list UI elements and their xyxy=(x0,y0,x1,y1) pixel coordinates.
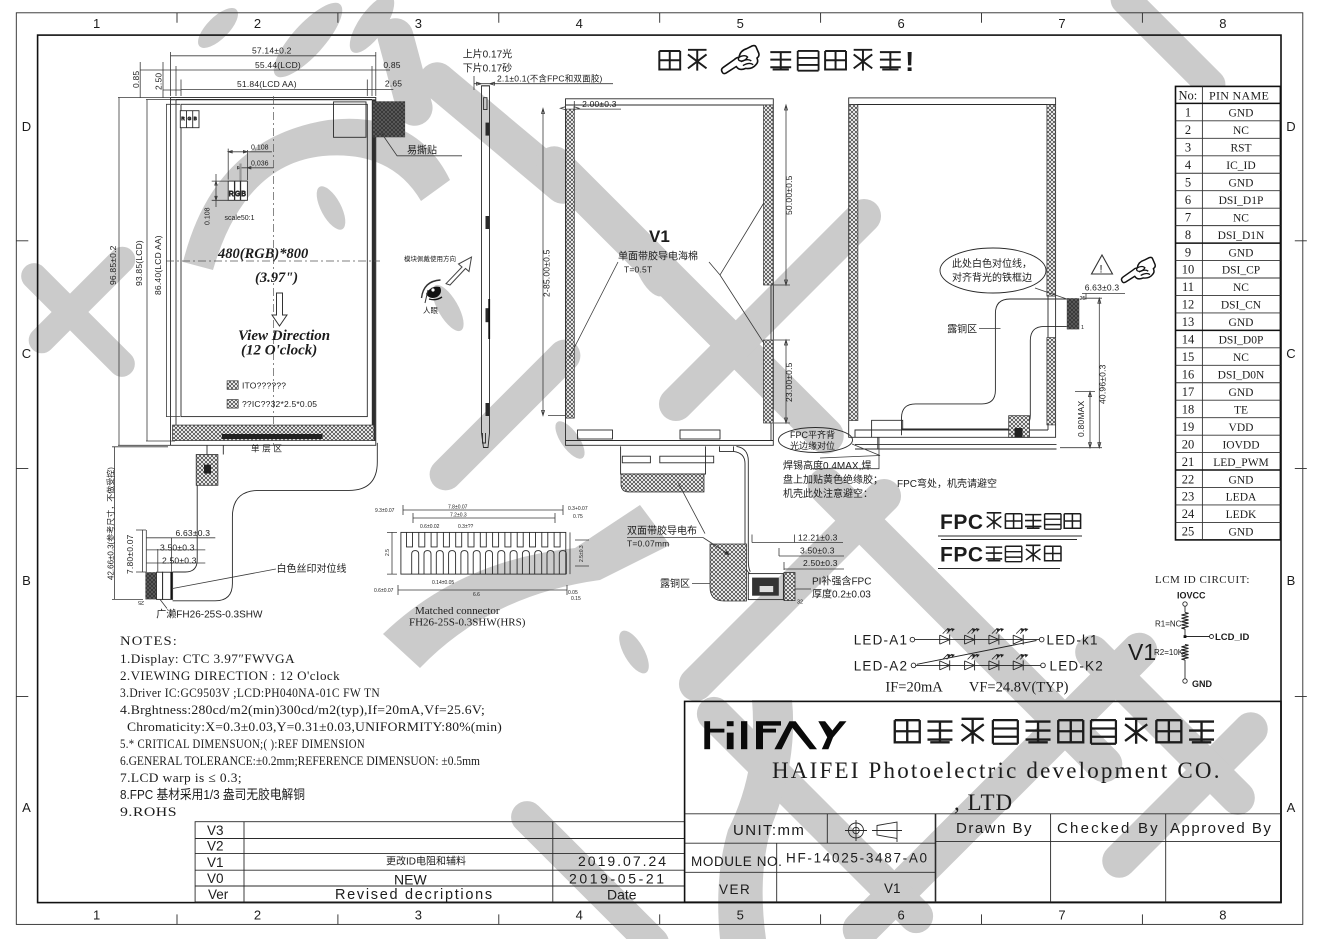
svg-text:4: 4 xyxy=(1185,158,1192,172)
svg-text:FPC平齐背: FPC平齐背 xyxy=(790,429,835,440)
svg-text:9: 9 xyxy=(1185,245,1191,259)
svg-text:NEW: NEW xyxy=(394,872,427,888)
svg-text:??IC??32*2.5*0.05: ??IC??32*2.5*0.05 xyxy=(242,399,317,409)
svg-text:T=0.5T: T=0.5T xyxy=(624,265,652,275)
svg-text:8: 8 xyxy=(1219,16,1226,31)
svg-text:上片0.17光: 上片0.17光 xyxy=(463,48,512,61)
svg-text:4: 4 xyxy=(576,16,583,31)
svg-text:(3.97"): (3.97") xyxy=(255,270,298,286)
svg-text:86.40(LCD AA): 86.40(LCD AA) xyxy=(153,235,163,295)
svg-text:V2: V2 xyxy=(207,839,224,854)
svg-text:1: 1 xyxy=(1081,325,1084,331)
svg-text:D: D xyxy=(22,119,31,134)
svg-text:易撕贴: 易撕贴 xyxy=(407,144,437,157)
svg-text:PI补强含FPC: PI补强含FPC xyxy=(812,575,871,588)
svg-text:G: G xyxy=(188,116,192,121)
svg-text:机壳此处注意避空：: 机壳此处注意避空： xyxy=(783,487,873,500)
svg-text:IOVDD: IOVDD xyxy=(1222,439,1259,451)
svg-text:0.3+0.07: 0.3+0.07 xyxy=(568,506,588,512)
svg-text:1.Display: CTC 3.97″FWVGA: 1.Display: CTC 3.97″FWVGA xyxy=(120,651,295,666)
svg-text:R: R xyxy=(229,191,234,198)
svg-text:0.85: 0.85 xyxy=(131,71,141,88)
svg-text:广濑FH26-25S-0.3SHW: 广濑FH26-25S-0.3SHW xyxy=(156,609,263,621)
svg-text:2: 2 xyxy=(1185,123,1191,137)
svg-text:GND: GND xyxy=(1229,527,1254,539)
svg-text:9.ROHS: 9.ROHS xyxy=(120,804,177,819)
svg-text:6: 6 xyxy=(1185,193,1191,207)
svg-text:7: 7 xyxy=(1058,16,1065,31)
svg-text:GND: GND xyxy=(1229,317,1254,329)
svg-text:NOTES:: NOTES: xyxy=(120,633,178,648)
svg-text:B: B xyxy=(241,191,246,198)
svg-text:96.85±0.2: 96.85±0.2 xyxy=(108,245,118,285)
svg-text:6.6: 6.6 xyxy=(473,592,480,598)
svg-text:(12 O'clock): (12 O'clock) xyxy=(241,343,317,359)
svg-text:ITO??????: ITO?????? xyxy=(242,381,286,391)
svg-text:0.80MAX: 0.80MAX xyxy=(1076,401,1086,437)
svg-text:7.LCD warp is ≤ 0.3;: 7.LCD warp is ≤ 0.3; xyxy=(120,770,242,785)
svg-text:GND: GND xyxy=(1229,474,1254,486)
svg-text:5: 5 xyxy=(737,16,744,31)
svg-text:GND: GND xyxy=(1229,387,1254,399)
svg-text:42.66±0.3(参考尺寸，不做受控): 42.66±0.3(参考尺寸，不做受控) xyxy=(106,467,116,580)
svg-text:1: 1 xyxy=(93,16,100,31)
svg-text:3.50±0.3: 3.50±0.3 xyxy=(160,543,195,553)
svg-text:19: 19 xyxy=(1182,420,1195,434)
svg-text:HAIFEI Photoelectric developme: HAIFEI Photoelectric development CO. xyxy=(772,758,1222,783)
svg-text:V0: V0 xyxy=(207,871,224,886)
svg-text:6.63±0.3: 6.63±0.3 xyxy=(1085,283,1120,293)
svg-text:VER: VER xyxy=(719,882,751,897)
svg-text:RST: RST xyxy=(1230,143,1251,155)
svg-text:40.96±0.3: 40.96±0.3 xyxy=(1098,364,1108,404)
svg-text:VF=24.8V(TYP): VF=24.8V(TYP) xyxy=(969,680,1069,696)
svg-text:GND: GND xyxy=(1229,108,1254,120)
svg-text:焊锡高度0.4MAX,焊: 焊锡高度0.4MAX,焊 xyxy=(783,459,871,472)
svg-text:0.14±0.05: 0.14±0.05 xyxy=(432,580,454,586)
svg-text:2.5±0.3: 2.5±0.3 xyxy=(579,545,585,562)
svg-text:GND: GND xyxy=(1229,247,1254,259)
svg-text:GND: GND xyxy=(1192,679,1213,689)
svg-text:2.50: 2.50 xyxy=(154,73,164,90)
svg-text:25: 25 xyxy=(1182,525,1195,539)
svg-text:2.VIEWING DIRECTION : 12 O'clo: 2.VIEWING DIRECTION : 12 O'clock xyxy=(120,668,340,683)
svg-text:!: ! xyxy=(1100,264,1103,276)
svg-text:LED-A1: LED-A1 xyxy=(854,633,908,648)
svg-text:B: B xyxy=(22,573,31,588)
svg-text:Checked By: Checked By xyxy=(1057,820,1160,837)
svg-text:2.00±0.3: 2.00±0.3 xyxy=(582,99,617,109)
svg-text:LCM ID CIRCUIT:: LCM ID CIRCUIT: xyxy=(1155,574,1250,586)
svg-text:480(RGB)*800: 480(RGB)*800 xyxy=(217,246,308,262)
svg-text:8: 8 xyxy=(1185,228,1191,242)
svg-text:NC: NC xyxy=(1233,125,1249,137)
svg-text:2019.07.24: 2019.07.24 xyxy=(578,853,668,869)
svg-text:LCD_ID: LCD_ID xyxy=(1215,632,1249,643)
svg-text:Revised decriptions: Revised decriptions xyxy=(335,887,494,903)
svg-text:DSI_D0P: DSI_D0P xyxy=(1219,335,1264,347)
svg-text:C: C xyxy=(1286,346,1295,361)
svg-text:12: 12 xyxy=(1182,298,1195,312)
svg-text:V1: V1 xyxy=(207,855,224,870)
svg-text:5: 5 xyxy=(1185,175,1191,189)
svg-text:93.85(LCD): 93.85(LCD) xyxy=(134,240,144,286)
svg-text:C: C xyxy=(22,346,31,361)
svg-text:50.00±0.5: 50.00±0.5 xyxy=(784,175,794,215)
svg-text:7.80±0.07: 7.80±0.07 xyxy=(125,534,135,574)
svg-text:光边缘对位: 光边缘对位 xyxy=(790,440,835,451)
svg-text:DSI_CP: DSI_CP xyxy=(1222,265,1260,277)
svg-text:24: 24 xyxy=(1182,507,1195,521)
svg-text:4.Brghtness:280cd/m2(min)300cd: 4.Brghtness:280cd/m2(min)300cd/m2(typ),I… xyxy=(120,702,485,717)
svg-text:NC: NC xyxy=(1233,352,1249,364)
svg-text:16: 16 xyxy=(1182,368,1195,382)
svg-text:13: 13 xyxy=(1182,315,1195,329)
svg-text:2-85.00±0.5: 2-85.00±0.5 xyxy=(542,249,552,297)
svg-text:Date: Date xyxy=(607,887,637,903)
svg-text:21: 21 xyxy=(1182,455,1195,469)
svg-text:此处白色对位线，: 此处白色对位线， xyxy=(952,257,1032,270)
svg-text:32: 32 xyxy=(797,600,803,606)
svg-text:12.21±0.3: 12.21±0.3 xyxy=(798,533,838,543)
svg-text:8.FPC 基材采用1/3 盎司无胶电解铜: 8.FPC 基材采用1/3 盎司无胶电解铜 xyxy=(120,787,305,802)
svg-text:Chromaticity:X=0.3±0.03,Y=0.31: Chromaticity:X=0.3±0.03,Y=0.31±0.03,UNIF… xyxy=(127,719,502,734)
svg-text:IC_ID: IC_ID xyxy=(1226,160,1255,172)
svg-text:V3: V3 xyxy=(207,823,224,838)
svg-text:V1: V1 xyxy=(1128,639,1156,665)
svg-text:IF=20mA: IF=20mA xyxy=(885,680,943,696)
svg-text:55.44(LCD): 55.44(LCD) xyxy=(255,60,301,70)
svg-text:2.50±0.3: 2.50±0.3 xyxy=(803,558,838,568)
svg-text:2019-05-21: 2019-05-21 xyxy=(569,871,667,887)
svg-text:0,108: 0,108 xyxy=(251,145,269,152)
svg-text:FPC: FPC xyxy=(940,511,984,534)
svg-text:0.85: 0.85 xyxy=(383,60,400,70)
svg-text:57.14±0.2: 57.14±0.2 xyxy=(252,45,292,55)
svg-text:2.65: 2.65 xyxy=(385,79,402,89)
svg-text:NC: NC xyxy=(1233,282,1249,294)
svg-text:6.63±0.3: 6.63±0.3 xyxy=(176,528,211,538)
svg-text:Matched connector: Matched connector xyxy=(415,605,500,617)
svg-text:7.8±0.07: 7.8±0.07 xyxy=(448,505,468,511)
svg-text:T=0.07mm: T=0.07mm xyxy=(627,539,669,549)
svg-text:LED_PWM: LED_PWM xyxy=(1213,457,1269,469)
svg-text:TE: TE xyxy=(1234,404,1248,416)
svg-text:Approved By: Approved By xyxy=(1170,820,1272,837)
svg-text:8: 8 xyxy=(1219,908,1226,923)
svg-text:DSI_D1N: DSI_D1N xyxy=(1218,230,1265,242)
svg-text:0.6±0.02: 0.6±0.02 xyxy=(420,524,440,530)
svg-text:0,036: 0,036 xyxy=(251,160,269,167)
svg-text:更改ID电阻和辅料: 更改ID电阻和辅料 xyxy=(386,855,466,868)
svg-text:5: 5 xyxy=(737,908,744,923)
svg-text:2.1±0.1(不含FPC和双面胶): 2.1±0.1(不含FPC和双面胶) xyxy=(497,74,603,84)
svg-text:3: 3 xyxy=(415,908,422,923)
svg-text:51.84(LCD AA): 51.84(LCD AA) xyxy=(237,79,297,89)
svg-text:FPC弯处，机壳请避空: FPC弯处，机壳请避空 xyxy=(897,477,997,490)
svg-text:厚度0.2±0.03: 厚度0.2±0.03 xyxy=(812,588,871,601)
svg-text:单 层 区: 单 层 区 xyxy=(251,444,283,454)
svg-text:6: 6 xyxy=(897,16,904,31)
svg-text:单面带胶导电海棉: 单面带胶导电海棉 xyxy=(618,250,698,263)
svg-text:盘上加贴黄色绝缘胶；: 盘上加贴黄色绝缘胶； xyxy=(783,473,883,486)
svg-text:GND: GND xyxy=(1229,177,1254,189)
svg-text:对齐背光的铁框边: 对齐背光的铁框边 xyxy=(952,271,1032,284)
svg-text:10: 10 xyxy=(1182,263,1195,277)
svg-text:2: 2 xyxy=(254,908,261,923)
svg-text:2.5: 2.5 xyxy=(385,549,391,556)
svg-text:VDD: VDD xyxy=(1229,422,1254,434)
svg-text:FPC: FPC xyxy=(940,544,984,567)
svg-text:LED-K2: LED-K2 xyxy=(1050,658,1104,673)
svg-text:FH26-25S-0.3SHW(HRS): FH26-25S-0.3SHW(HRS) xyxy=(409,616,526,628)
svg-text:IOVCC: IOVCC xyxy=(1177,591,1206,601)
svg-text:双面带胶导电布: 双面带胶导电布 xyxy=(627,524,697,537)
svg-text:UNIT:mm: UNIT:mm xyxy=(733,822,805,839)
svg-text:D: D xyxy=(1286,119,1295,134)
svg-text:5.* CRITICAL DIMENSUON;( ):REF: 5.* CRITICAL DIMENSUON;( ):REF DIMENSION xyxy=(120,736,365,751)
svg-text:20: 20 xyxy=(1182,437,1195,451)
svg-text:4: 4 xyxy=(576,908,583,923)
svg-text:6.GENERAL TOLERANCE:±0.2mm;REF: 6.GENERAL TOLERANCE:±0.2mm;REFERENCE DIM… xyxy=(120,753,480,768)
svg-text:Ver: Ver xyxy=(208,887,229,902)
svg-text:No:: No: xyxy=(1179,89,1198,103)
svg-text:25: 25 xyxy=(1080,296,1086,302)
svg-text:DSI_D0N: DSI_D0N xyxy=(1218,370,1265,382)
svg-text:人眼: 人眼 xyxy=(423,306,438,315)
svg-text:0.6±0.07: 0.6±0.07 xyxy=(374,588,394,594)
svg-text:V1: V1 xyxy=(884,881,901,896)
svg-text:23.00±0.5: 23.00±0.5 xyxy=(784,362,794,402)
svg-text:!: ! xyxy=(905,46,914,77)
svg-text:B: B xyxy=(194,116,197,121)
svg-text:1: 1 xyxy=(93,908,100,923)
svg-text:露铜区: 露铜区 xyxy=(660,578,690,590)
svg-text:2: 2 xyxy=(254,16,261,31)
svg-text:11: 11 xyxy=(1182,280,1194,294)
svg-text:HF-14025-3487-A0: HF-14025-3487-A0 xyxy=(786,851,929,866)
svg-text:25: 25 xyxy=(138,599,144,605)
svg-text:23: 23 xyxy=(1182,490,1195,504)
svg-text:0.75: 0.75 xyxy=(573,514,583,520)
svg-text:15: 15 xyxy=(1182,350,1195,364)
svg-text:17: 17 xyxy=(1182,385,1195,399)
svg-text:, LTD: , LTD xyxy=(954,790,1013,815)
svg-text:9.3±0.07: 9.3±0.07 xyxy=(375,508,395,514)
svg-text:PIN NAME: PIN NAME xyxy=(1209,89,1269,103)
svg-text:scale50:1: scale50:1 xyxy=(225,215,255,222)
svg-text:6: 6 xyxy=(897,908,904,923)
svg-text:3.50±0.3: 3.50±0.3 xyxy=(800,546,835,556)
svg-text:14: 14 xyxy=(1182,333,1195,347)
svg-text:7: 7 xyxy=(1058,908,1065,923)
svg-text:G: G xyxy=(235,191,240,198)
svg-text:22: 22 xyxy=(1182,472,1195,486)
svg-text:B: B xyxy=(1287,573,1296,588)
svg-text:0.15: 0.15 xyxy=(571,596,581,602)
svg-text:LED-k1: LED-k1 xyxy=(1047,633,1099,648)
svg-text:1: 1 xyxy=(1185,106,1191,120)
svg-text:7.2±0.3: 7.2±0.3 xyxy=(450,513,467,519)
svg-text:0.3±??: 0.3±?? xyxy=(458,524,473,530)
svg-text:A: A xyxy=(1287,800,1296,815)
svg-text:LEDK: LEDK xyxy=(1226,509,1257,521)
svg-text:R1=NC: R1=NC xyxy=(1155,620,1182,629)
svg-text:MODULE NO.: MODULE NO. xyxy=(691,854,783,869)
svg-text:2.50±0.3: 2.50±0.3 xyxy=(162,556,197,566)
svg-text:NC: NC xyxy=(1233,212,1249,224)
svg-text:A: A xyxy=(22,800,31,815)
svg-text:露铜区: 露铜区 xyxy=(947,323,977,335)
svg-text:3: 3 xyxy=(1185,141,1191,155)
svg-text:3: 3 xyxy=(415,16,422,31)
svg-text:LED-A2: LED-A2 xyxy=(854,658,908,673)
svg-text:模块佩戴使用方向: 模块佩戴使用方向 xyxy=(404,254,456,263)
svg-text:18: 18 xyxy=(1182,402,1195,416)
svg-text:LEDA: LEDA xyxy=(1226,492,1257,504)
svg-text:V1: V1 xyxy=(649,227,670,246)
svg-text:Drawn By: Drawn By xyxy=(956,820,1033,837)
svg-text:白色丝印对位线: 白色丝印对位线 xyxy=(277,562,347,575)
svg-text:DSI_CN: DSI_CN xyxy=(1221,300,1262,312)
svg-text:0.108: 0.108 xyxy=(205,207,212,225)
svg-text:R2=10K: R2=10K xyxy=(1154,648,1184,657)
svg-text:7: 7 xyxy=(1185,210,1191,224)
svg-text:DSI_D1P: DSI_D1P xyxy=(1219,195,1264,207)
svg-text:3.Driver IC:GC9503V ;LCD:PH040: 3.Driver IC:GC9503V ;LCD:PH040NA-01C FW … xyxy=(120,685,380,700)
